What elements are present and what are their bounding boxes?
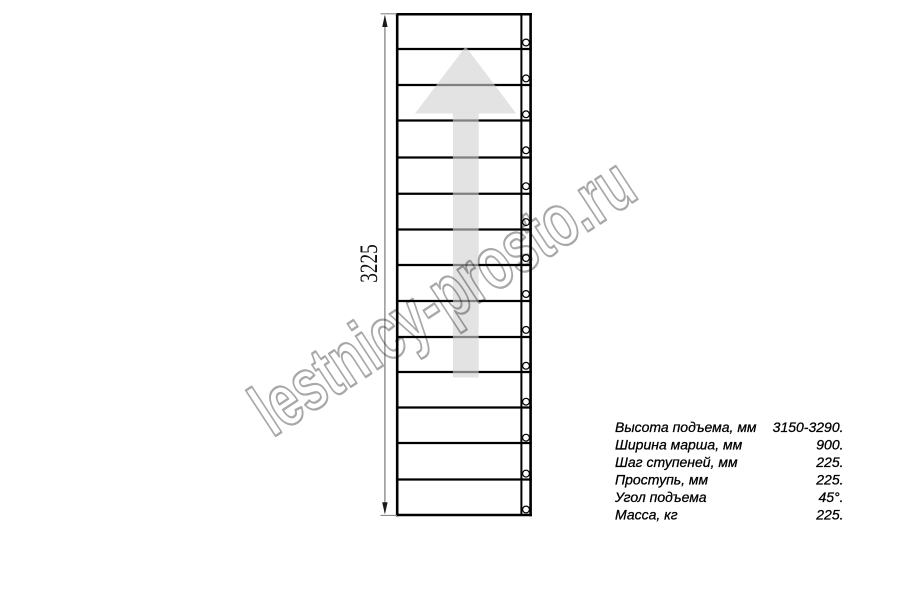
svg-text:Шаг ступеней, мм: Шаг ступеней, мм: [615, 454, 738, 470]
svg-text:lestnicy-prosto.ru: lestnicy-prosto.ru: [235, 140, 649, 451]
svg-text:Угол подъема: Угол подъема: [614, 489, 707, 505]
svg-text:225.: 225.: [815, 507, 843, 523]
svg-text:225.: 225.: [815, 472, 843, 488]
svg-text:Ширина марша, мм: Ширина марша, мм: [615, 437, 743, 453]
svg-text:45°.: 45°.: [818, 489, 843, 505]
svg-text:3225: 3225: [356, 244, 383, 283]
svg-text:Масса, кг: Масса, кг: [615, 507, 678, 523]
svg-text:Высота подъема, мм: Высота подъема, мм: [615, 419, 757, 435]
svg-text:225.: 225.: [815, 454, 843, 470]
svg-text:Проступь, мм: Проступь, мм: [615, 472, 709, 488]
svg-text:3150-3290.: 3150-3290.: [773, 419, 844, 435]
svg-text:900.: 900.: [816, 437, 843, 453]
